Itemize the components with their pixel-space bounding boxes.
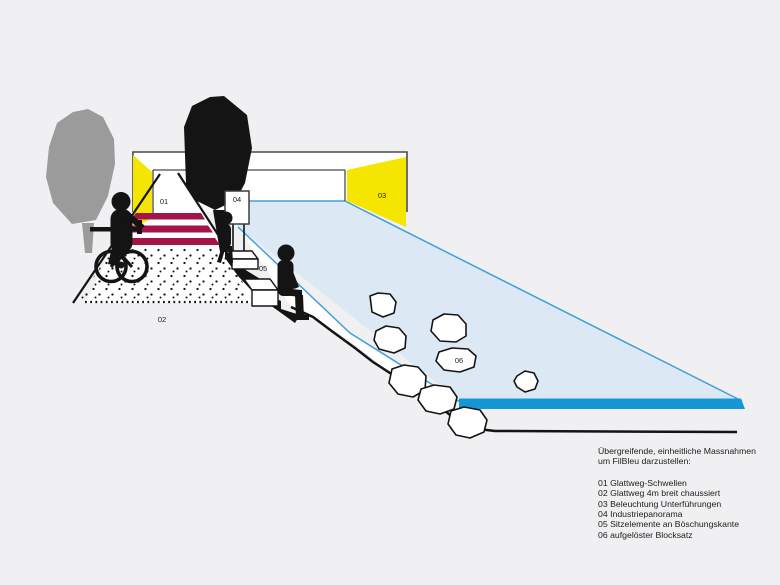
illustration-canvas: 01 02 03 04 05 06 Übergreifende, einheit… bbox=[0, 0, 780, 585]
marker-02: 02 bbox=[158, 315, 166, 324]
stone bbox=[431, 314, 466, 342]
legend-item: 04 Industriepanorama bbox=[598, 509, 774, 519]
legend-item: 03 Beleuchtung Unterführungen bbox=[598, 499, 774, 509]
stone bbox=[374, 326, 406, 353]
marker-01: 01 bbox=[160, 197, 168, 206]
tree-gray-crown bbox=[46, 109, 115, 224]
stone bbox=[370, 293, 396, 317]
stone bbox=[448, 407, 487, 438]
legend: Übergreifende, einheitliche Massnahmen u… bbox=[598, 446, 774, 540]
figure-walking-head bbox=[220, 212, 233, 225]
stone bbox=[418, 385, 457, 414]
cyclist-head bbox=[112, 192, 131, 211]
figure-sitting-head bbox=[278, 245, 295, 262]
marker-05: 05 bbox=[259, 264, 267, 273]
legend-item: 02 Glattweg 4m breit chaussiert bbox=[598, 488, 774, 498]
marker-06: 06 bbox=[455, 356, 463, 365]
legend-intro: Übergreifende, einheitliche Massnahmen u… bbox=[598, 446, 774, 467]
figure-sitting-foot bbox=[296, 314, 309, 320]
figure-walking-body bbox=[220, 224, 231, 248]
legend-items: 01 Glattweg-Schwellen 02 Glattweg 4m bre… bbox=[598, 478, 774, 540]
threshold-stripe bbox=[131, 213, 205, 220]
legend-item: 01 Glattweg-Schwellen bbox=[598, 478, 774, 488]
legend-item: 06 aufgelöster Blocksatz bbox=[598, 530, 774, 540]
legend-intro-line: Übergreifende, einheitliche Massnahmen bbox=[598, 446, 774, 456]
marker-03: 03 bbox=[378, 191, 386, 200]
river-band bbox=[459, 399, 745, 410]
marker-04: 04 bbox=[233, 195, 241, 204]
seat-box-front bbox=[232, 259, 258, 269]
legend-item: 05 Sitzelemente an Böschungskante bbox=[598, 519, 774, 529]
legend-intro-line: um FilBleu darzustellen: bbox=[598, 456, 774, 466]
seat-box-top bbox=[244, 279, 278, 290]
seat-box-front bbox=[252, 290, 278, 306]
